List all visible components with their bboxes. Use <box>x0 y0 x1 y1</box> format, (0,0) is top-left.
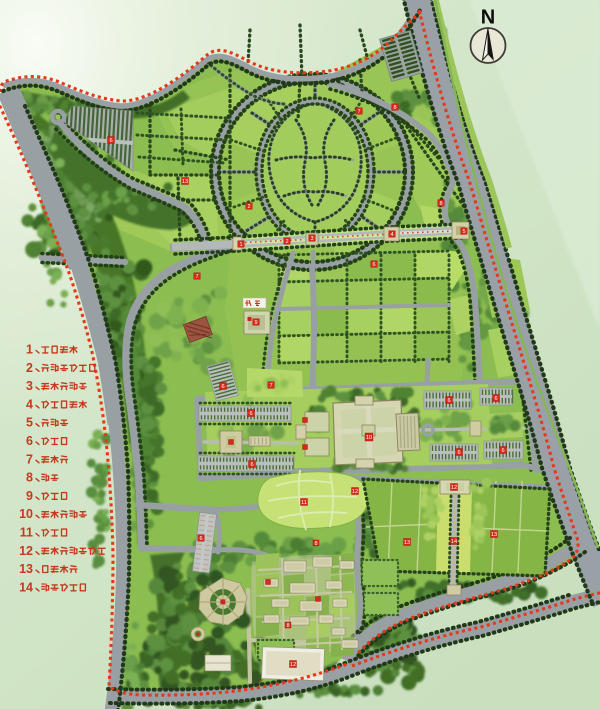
svg-text:6: 6 <box>250 462 253 468</box>
svg-text:12: 12 <box>451 485 457 491</box>
svg-text:13: 13 <box>19 562 33 576</box>
svg-text:14: 14 <box>451 539 457 545</box>
svg-text:6: 6 <box>249 411 252 417</box>
svg-text:4: 4 <box>390 232 393 238</box>
svg-text:6: 6 <box>221 384 224 390</box>
svg-text:5: 5 <box>462 229 465 235</box>
svg-text:1: 1 <box>239 242 242 248</box>
svg-text:2: 2 <box>247 204 250 210</box>
svg-text:2: 2 <box>26 361 33 375</box>
svg-text:4: 4 <box>26 397 33 411</box>
svg-text:12: 12 <box>290 662 296 668</box>
svg-text:12: 12 <box>19 544 33 558</box>
svg-text:13: 13 <box>182 179 188 185</box>
svg-text:8: 8 <box>286 623 289 629</box>
svg-text:2: 2 <box>285 239 288 245</box>
svg-text:7: 7 <box>357 109 360 115</box>
svg-text:7: 7 <box>269 383 272 389</box>
svg-text:6: 6 <box>447 398 450 404</box>
svg-text:14: 14 <box>19 580 33 594</box>
svg-text:3: 3 <box>310 236 313 242</box>
svg-text:9: 9 <box>254 320 257 326</box>
svg-text:1: 1 <box>26 343 33 357</box>
svg-text:6: 6 <box>457 450 460 456</box>
svg-text:11: 11 <box>20 526 33 540</box>
svg-text:12: 12 <box>352 489 358 495</box>
svg-text:N: N <box>481 7 495 29</box>
svg-text:8: 8 <box>439 201 442 207</box>
svg-text:6: 6 <box>494 396 497 402</box>
svg-text:7: 7 <box>26 452 33 466</box>
svg-text:6: 6 <box>199 536 202 542</box>
svg-text:7: 7 <box>195 274 198 280</box>
svg-text:6: 6 <box>26 434 33 448</box>
svg-text:6: 6 <box>109 138 112 144</box>
svg-text:3: 3 <box>26 379 33 393</box>
svg-text:9: 9 <box>26 489 33 503</box>
svg-text:8: 8 <box>26 471 33 485</box>
svg-text:10: 10 <box>19 507 33 521</box>
svg-text:10: 10 <box>366 435 372 441</box>
svg-text:11: 11 <box>301 500 307 506</box>
svg-text:13: 13 <box>491 532 497 538</box>
svg-text:13: 13 <box>404 540 410 546</box>
svg-text:5: 5 <box>26 416 33 430</box>
svg-text:8: 8 <box>393 105 396 111</box>
svg-text:6: 6 <box>501 448 504 454</box>
svg-text:8: 8 <box>314 541 317 547</box>
svg-text:6: 6 <box>372 262 375 268</box>
